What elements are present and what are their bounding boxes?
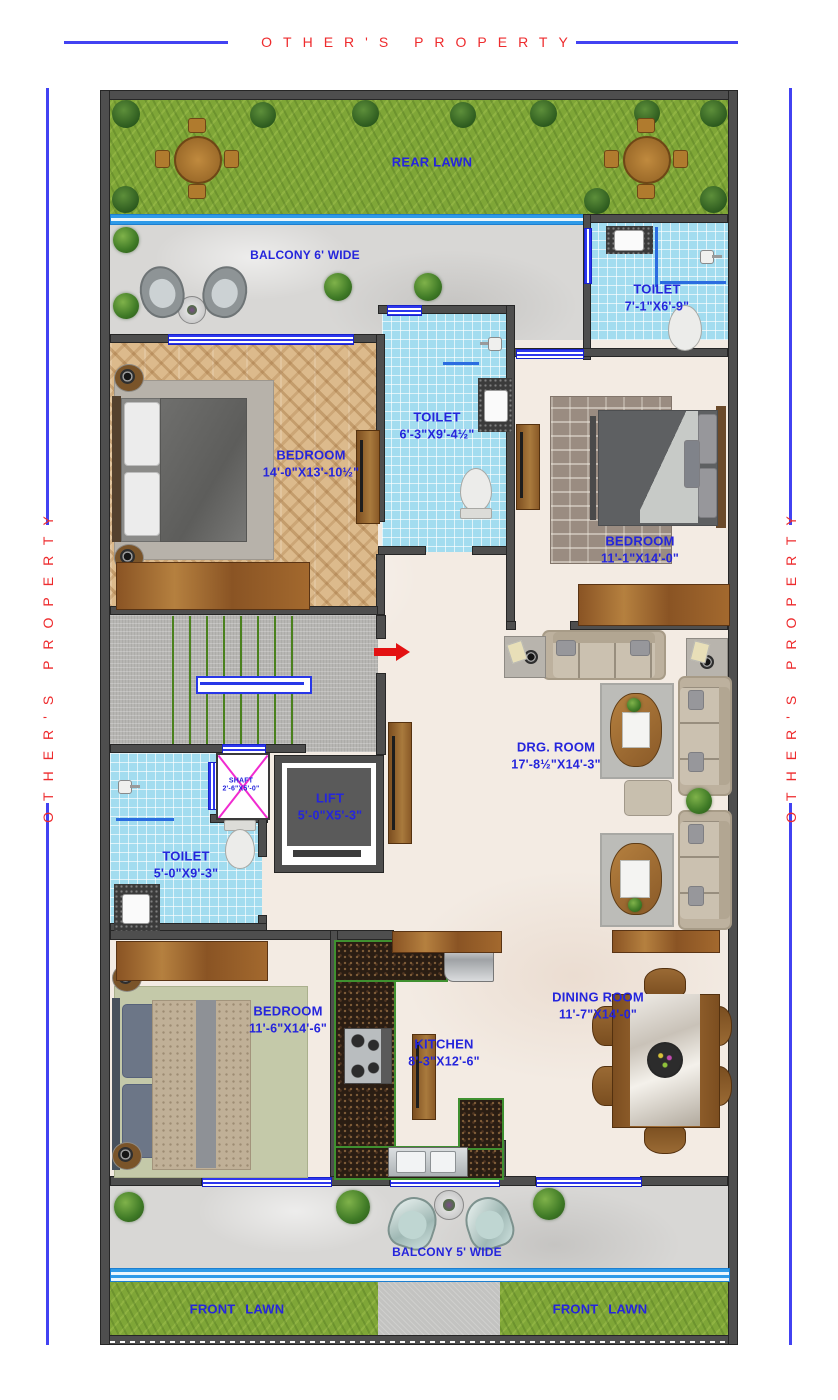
garden-chair <box>188 118 206 133</box>
left-boundary-line-lower <box>46 803 49 1345</box>
plant <box>114 1192 144 1222</box>
bush <box>250 102 276 128</box>
toilet-wc <box>460 468 492 512</box>
centerpiece <box>647 1042 683 1078</box>
wall-segment <box>110 744 306 753</box>
plant <box>113 227 139 253</box>
tv-screen <box>360 440 363 512</box>
plant <box>533 1188 565 1220</box>
balcony-bottom-label: BALCONY 5' WIDE <box>392 1245 502 1261</box>
dining-room-label: DINING ROOM 11'-7"X14'-0" <box>552 989 644 1022</box>
bed-headboard <box>112 396 121 542</box>
left-boundary-line-upper <box>46 88 49 525</box>
gas-stove <box>344 1028 392 1084</box>
wall-segment <box>585 214 728 223</box>
table-lamp <box>118 1147 133 1162</box>
sofa <box>678 810 732 930</box>
glass-partition <box>655 227 658 287</box>
window <box>584 228 592 284</box>
lift-door <box>293 850 361 857</box>
sink <box>614 230 644 251</box>
shower-arm <box>130 785 140 788</box>
entry-arrow <box>374 648 396 656</box>
sink <box>122 894 150 924</box>
glass-partition <box>443 362 479 365</box>
window <box>168 334 354 345</box>
bush <box>112 100 140 128</box>
ottoman <box>624 780 672 816</box>
toilet-wc <box>225 829 255 869</box>
drg-room-label: DRG. ROOM 17'-8½"X14'-3" <box>511 739 600 772</box>
right-boundary-line-lower <box>789 803 792 1345</box>
bed-pillow <box>124 472 160 536</box>
plant <box>324 273 352 301</box>
stair-handrail <box>196 676 312 694</box>
garden-table <box>174 136 222 184</box>
wall-segment <box>506 621 516 630</box>
floor-plan-canvas: OTHER'S PROPERTY OTHER'S PROPERTY OTHER'… <box>0 0 838 1400</box>
sofa-pillow <box>688 886 704 906</box>
kitchen-label: KITCHEN 8'-3"X12'-6" <box>408 1036 480 1069</box>
tv-screen <box>520 432 523 498</box>
bush <box>352 100 379 127</box>
bed-pillow <box>124 402 160 466</box>
bush <box>584 188 610 214</box>
toilet-mid-label: TOILET 6'-3"X9'-4½" <box>399 409 474 442</box>
plant <box>628 898 642 912</box>
wall-outer-bottom <box>100 1335 738 1345</box>
rear-balcony-railing <box>110 214 587 225</box>
sideboard <box>612 930 720 953</box>
top-boundary-line-left <box>64 41 228 44</box>
plant <box>414 273 442 301</box>
stair-handrail-line <box>200 682 304 685</box>
garden-chair <box>637 118 655 133</box>
right-boundary-line-upper <box>789 88 792 525</box>
bush <box>450 102 476 128</box>
wardrobe <box>116 562 310 610</box>
sofa-pillow <box>556 640 576 656</box>
shower-arm <box>712 255 722 258</box>
bed-pillow <box>698 468 717 518</box>
sofa-pillow <box>688 824 704 844</box>
sink-basin <box>396 1151 426 1173</box>
window <box>202 1177 332 1187</box>
balcony-table <box>434 1190 464 1220</box>
plant <box>686 788 712 814</box>
plant <box>336 1190 370 1224</box>
dining-chair <box>644 1124 686 1154</box>
bush <box>530 100 557 127</box>
window <box>516 349 584 359</box>
bedroom-left-label: BEDROOM 14'-0"X13'-10½" <box>263 447 360 480</box>
sink <box>484 390 508 422</box>
plant <box>113 293 139 319</box>
kitchen-shelf <box>392 931 502 953</box>
garden-table <box>623 136 671 184</box>
garden-chair <box>224 150 239 168</box>
wall-segment <box>640 1176 728 1186</box>
bedroom-bottom-label: BEDROOM 11'-6"X14'-6" <box>249 1003 327 1036</box>
bush <box>700 100 727 127</box>
bedroom-right-label: BEDROOM 11'-1"X14'-0" <box>601 533 679 566</box>
front-lawn-right-label: FRONT LAWN <box>553 1302 648 1319</box>
wall-segment <box>376 615 386 639</box>
wall-outer-left <box>100 90 110 1345</box>
garden-chair <box>637 184 655 199</box>
garden-chair <box>155 150 170 168</box>
wall-outer-top <box>100 90 738 100</box>
plot-dashed-line <box>110 1341 728 1343</box>
shower-head <box>488 337 502 351</box>
sofa-pillow <box>688 752 704 772</box>
wall-segment <box>376 673 386 755</box>
garden-chair <box>188 184 206 199</box>
sofa-pillow <box>630 640 650 656</box>
window <box>387 305 422 316</box>
sink-basin <box>430 1151 456 1173</box>
garden-chair <box>604 150 619 168</box>
toilet-tank <box>460 508 492 519</box>
shower-arm <box>480 342 488 345</box>
shaft-label: SHAFT 2'-6"X5'-0" <box>222 778 259 795</box>
left-property-label: OTHER'S PROPERTY <box>40 505 56 823</box>
bed-duvet <box>160 398 247 542</box>
top-boundary-line-right <box>576 41 738 44</box>
wall-segment <box>330 930 394 940</box>
bush <box>700 186 727 213</box>
garden-chair <box>673 150 688 168</box>
tray <box>620 860 650 898</box>
right-property-label: OTHER'S PROPERTY <box>783 505 799 823</box>
wardrobe <box>116 941 268 981</box>
toilet-bottom-label: TOILET 5'-0"X9'-3" <box>154 848 218 881</box>
window <box>536 1177 642 1187</box>
wall-segment <box>110 930 338 940</box>
lift-label: LIFT 5'-0"X5'-3" <box>298 790 362 823</box>
plant <box>627 698 641 712</box>
front-balcony-railing <box>110 1268 730 1282</box>
bed-runner <box>196 1000 216 1168</box>
balcony-top-label: BALCONY 6' WIDE <box>250 248 360 264</box>
kitchen-counter <box>458 1098 504 1150</box>
toilet-top-right-label: TOILET 7'-1"X6'-9" <box>625 281 689 314</box>
front-lawn-left-label: FRONT LAWN <box>190 1302 285 1319</box>
rear-lawn-label: REAR LAWN <box>392 155 473 172</box>
sofa <box>678 676 732 796</box>
sofa-pillow <box>688 690 704 710</box>
wall-segment <box>378 546 426 555</box>
tv-screen <box>392 736 395 830</box>
wall-segment <box>506 305 515 630</box>
table-lamp <box>120 369 135 384</box>
bed-pillow <box>698 414 717 464</box>
tray <box>622 712 650 748</box>
bed-bench <box>590 416 596 520</box>
glass-partition <box>116 818 174 821</box>
bush <box>112 186 139 213</box>
top-property-label: OTHER'S PROPERTY <box>261 34 579 50</box>
bed-pillow <box>684 440 700 488</box>
wardrobe <box>578 584 730 626</box>
entry-arrow-head <box>396 643 410 661</box>
entry-path <box>378 1280 500 1335</box>
